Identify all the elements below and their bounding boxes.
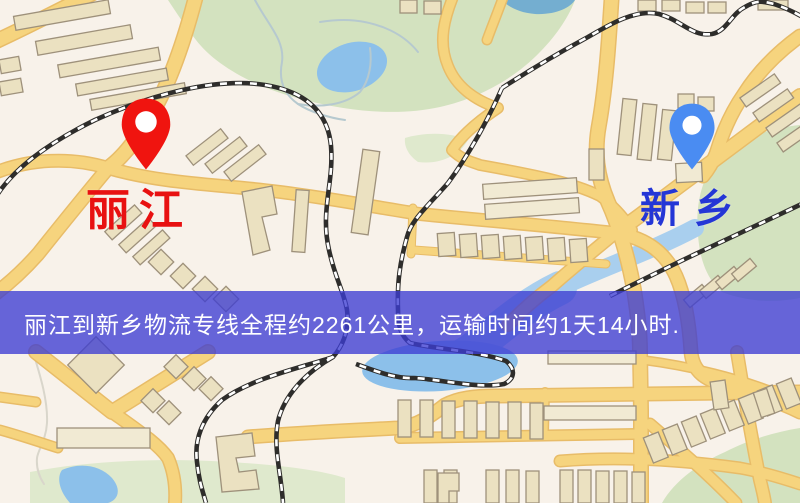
- route-info-text: 丽江到新乡物流专线全程约2261公里，运输时间约1天14小时.: [0, 306, 680, 340]
- red-location-pin-icon: [118, 96, 174, 172]
- origin-label: 丽江: [86, 174, 192, 238]
- map-screenshot: 丽江 新乡 丽江到新乡物流专线全程约2261公里，运输时间约1天14小时.: [0, 0, 800, 503]
- map-canvas: [0, 0, 800, 503]
- destination-label: 新乡: [640, 176, 748, 234]
- blue-location-pin-icon: [666, 101, 718, 172]
- origin-marker: [118, 96, 174, 172]
- destination-marker: [666, 101, 718, 172]
- route-info-banner: 丽江到新乡物流专线全程约2261公里，运输时间约1天14小时.: [0, 291, 800, 354]
